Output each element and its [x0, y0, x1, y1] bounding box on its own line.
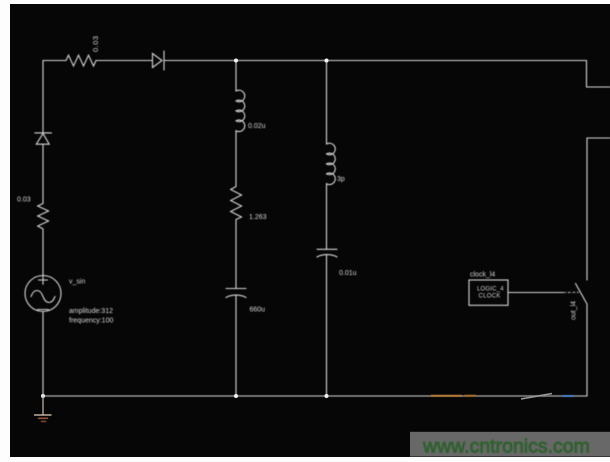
svg-text:0.03: 0.03	[91, 35, 100, 52]
svg-text:www.cntronics.com: www.cntronics.com	[422, 436, 590, 458]
svg-text:0.02u: 0.02u	[248, 123, 266, 130]
svg-text:3p: 3p	[337, 176, 345, 183]
svg-text:1.263: 1.263	[249, 214, 267, 221]
svg-text:v_sin: v_sin	[69, 279, 85, 286]
svg-text:660u: 660u	[250, 307, 266, 314]
svg-text:LOGIC_4: LOGIC_4	[477, 287, 504, 293]
svg-text:amplitude:312: amplitude:312	[69, 308, 113, 315]
svg-text:clock_l4: clock_l4	[470, 272, 495, 279]
svg-text:0.03: 0.03	[17, 197, 31, 204]
svg-text:0.01u: 0.01u	[339, 270, 357, 277]
svg-text:CLOCK: CLOCK	[479, 294, 501, 300]
svg-text:frequency:100: frequency:100	[69, 318, 113, 325]
svg-text:out_l4: out_l4	[571, 301, 578, 320]
